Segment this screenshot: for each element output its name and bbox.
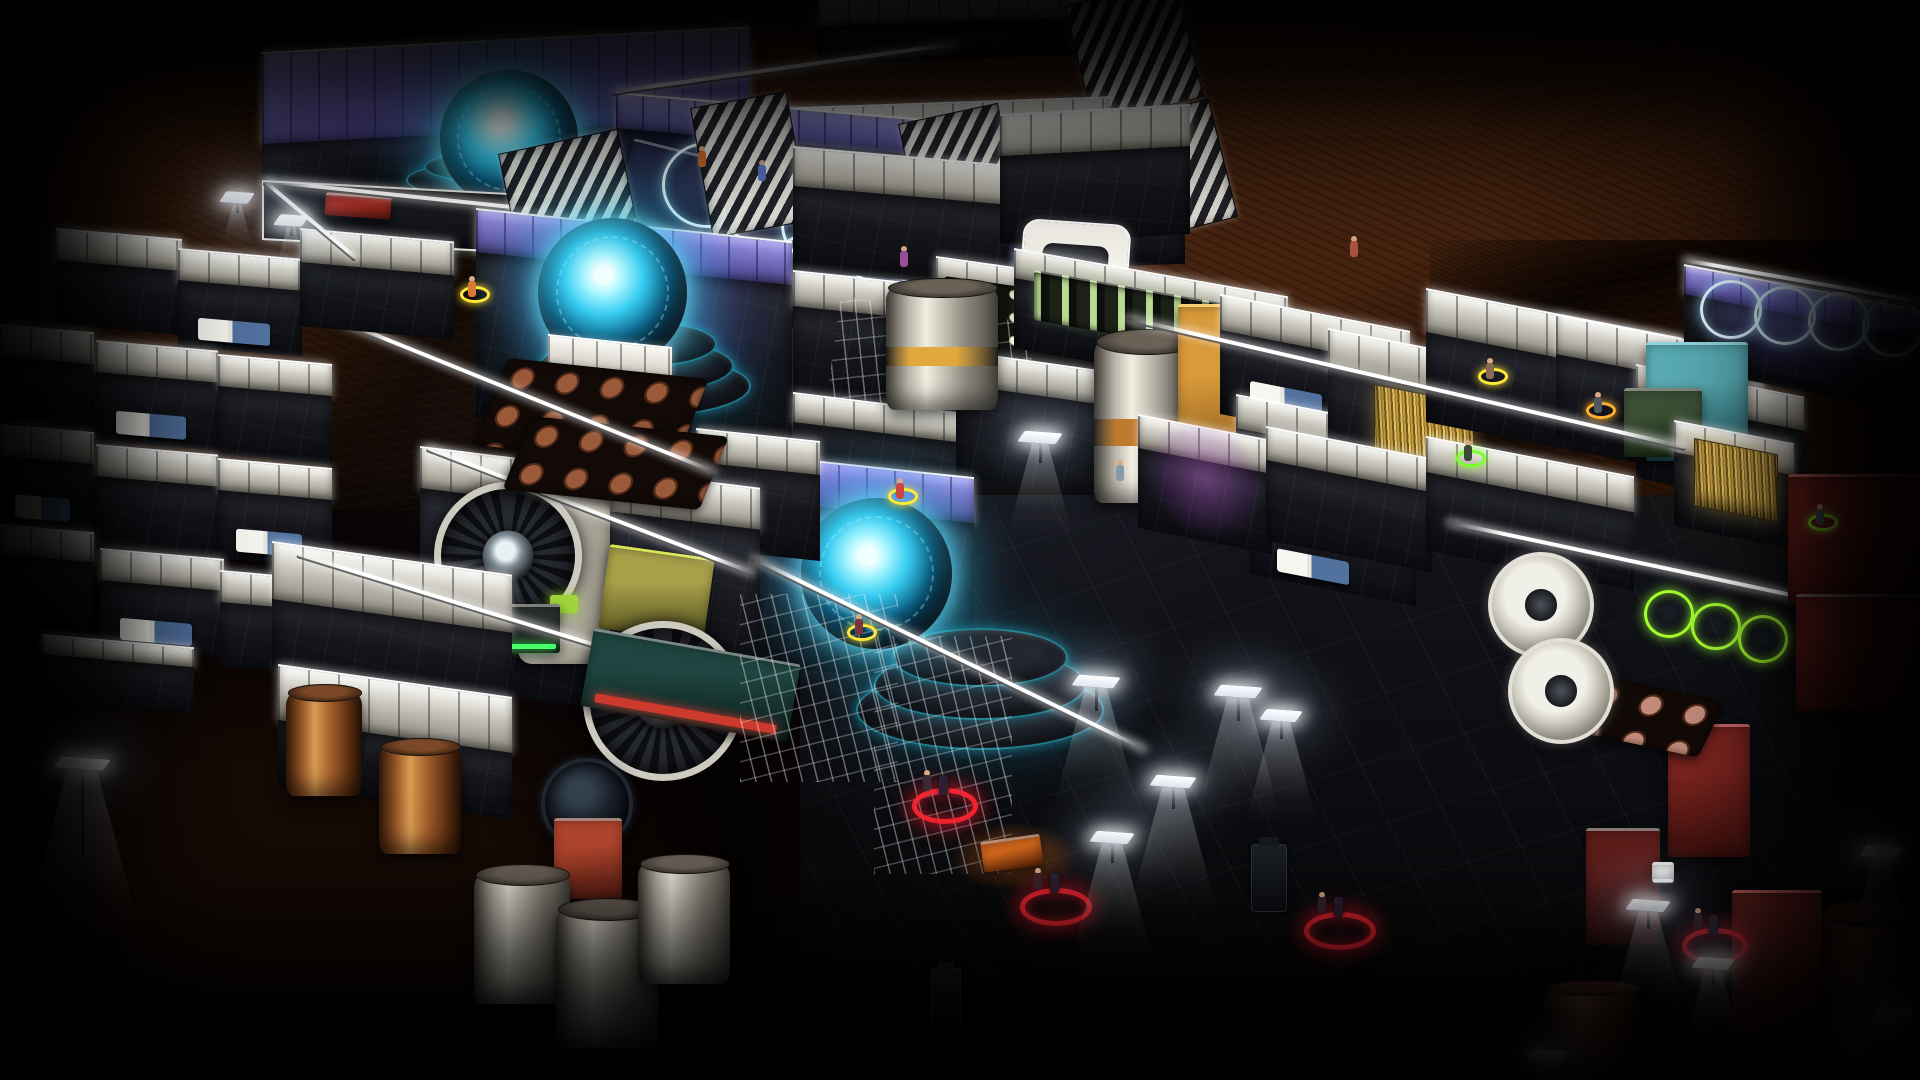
game-viewport bbox=[0, 0, 1920, 1080]
vignette-overlay bbox=[0, 0, 1920, 1080]
